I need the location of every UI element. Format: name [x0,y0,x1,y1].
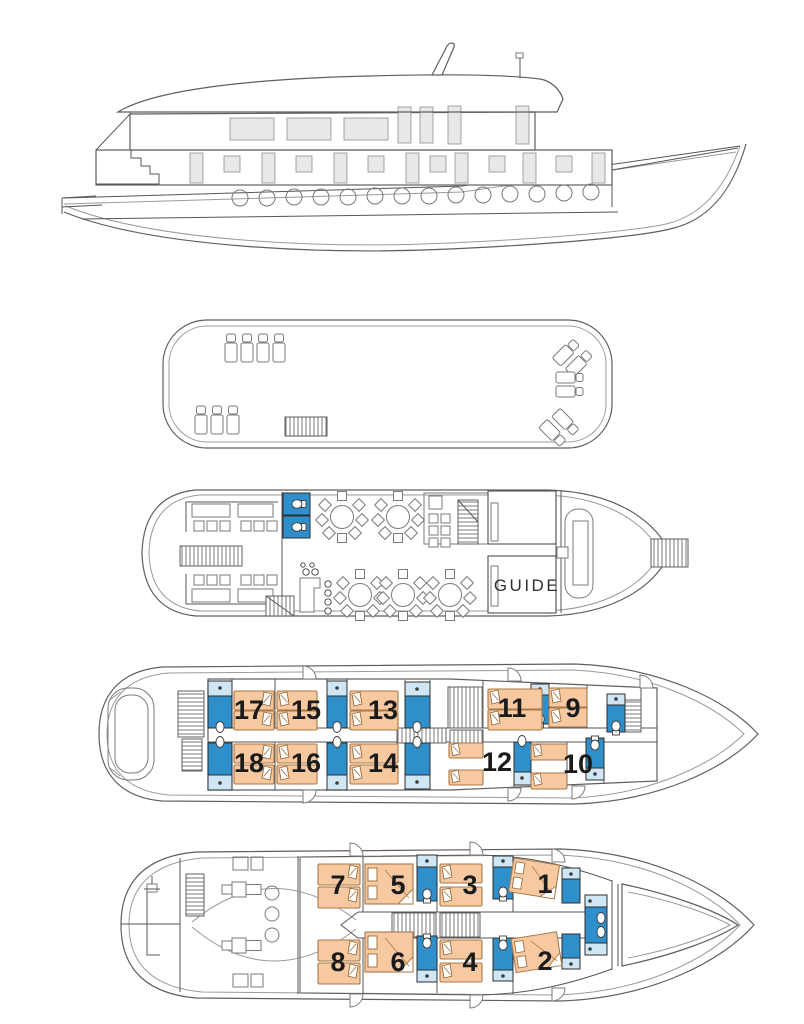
antenna [516,53,523,78]
cabin-6: 6 [365,932,413,977]
engine-room-ladder [186,874,204,916]
bathroom-unit [417,855,437,903]
cabin-number: 1 [537,869,552,899]
upper-deckhouse [130,112,535,150]
cabin-number: 13 [368,695,398,725]
toilet [292,500,306,508]
bathroom-unit [585,895,607,955]
sun-deck-roof [118,75,563,112]
cabin-number: 10 [563,749,593,779]
sun-lounger [556,386,583,397]
bathroom-unit [562,868,580,903]
bathroom-unit [493,856,513,901]
cabin-number: 17 [234,695,264,725]
main-deck-plan: GUIDE [142,490,688,621]
stern-staircase [178,691,204,771]
sun-deck-plan [163,320,612,448]
sun-lounger [241,334,253,362]
sun-lounger [195,406,207,434]
sun-lounger [273,334,285,362]
lounger-group-fore-port [225,334,285,362]
cabin-number: 8 [330,947,345,977]
wc-unit [283,493,310,538]
sun-deck-stairs [285,417,327,436]
cabin-number: 4 [462,947,477,977]
sun-lounger [227,406,239,434]
double-bed [365,864,413,904]
cabin-15: 15 [277,691,321,730]
cabin-number: 6 [390,947,405,977]
cabin-number: 14 [368,748,398,778]
double-bed [511,932,562,973]
sun-lounger [257,334,269,362]
boarding-steps [266,596,294,616]
deck-plan-diagram: GUIDE [0,0,804,1024]
bathroom-unit [514,736,531,786]
stern-platform [62,196,102,214]
deck-line [82,212,618,219]
deck-plan-page: GUIDE [0,0,804,1024]
toilet [292,523,306,531]
bathroom-unit [417,934,437,982]
lounger-group-starboard [539,338,594,447]
gangway [651,539,688,567]
cabin-13: 13 [350,691,398,730]
guide-cabin: GUIDE [488,556,560,613]
cabin-number: 11 [498,693,527,723]
side-profile-view [62,43,746,251]
cabin-9: 9 [549,688,587,727]
lower-cabin-deck-plan: 7 5 3 1 8 6 4 2 [121,842,754,1008]
cabin-number: 2 [537,946,552,976]
cabin-11: 11 [488,689,542,730]
cabin-number: 5 [390,870,405,900]
double-bed [365,932,413,972]
cabin-17: 17 [234,691,274,730]
guide-label: GUIDE [494,576,560,595]
forward-cabin [488,491,556,544]
upper-cabin-deck-plan: 17 15 13 11 9 18 16 14 12 [99,664,758,804]
cabin-number: 7 [330,870,345,900]
cabin-1: 1 [509,858,560,899]
cabin-number: 3 [462,870,477,900]
bathroom-unit [562,934,580,969]
sun-lounger [556,372,583,383]
sun-lounger [225,334,237,362]
cabin-number: 16 [291,748,321,778]
lounger-group-aft-port [195,406,239,434]
cabin-5: 5 [365,864,413,904]
mast [432,43,454,75]
bathroom-unit [607,694,625,735]
cabin-number: 18 [234,748,264,778]
aft-table-hatch [180,546,242,566]
bow-staircase [624,700,641,732]
bathroom-unit [493,936,513,981]
cabin-number: 15 [291,695,321,725]
cabin-number: 12 [482,747,512,777]
cabin-number: 9 [565,693,580,723]
salon-staircase [458,500,478,544]
sun-lounger [211,406,223,434]
